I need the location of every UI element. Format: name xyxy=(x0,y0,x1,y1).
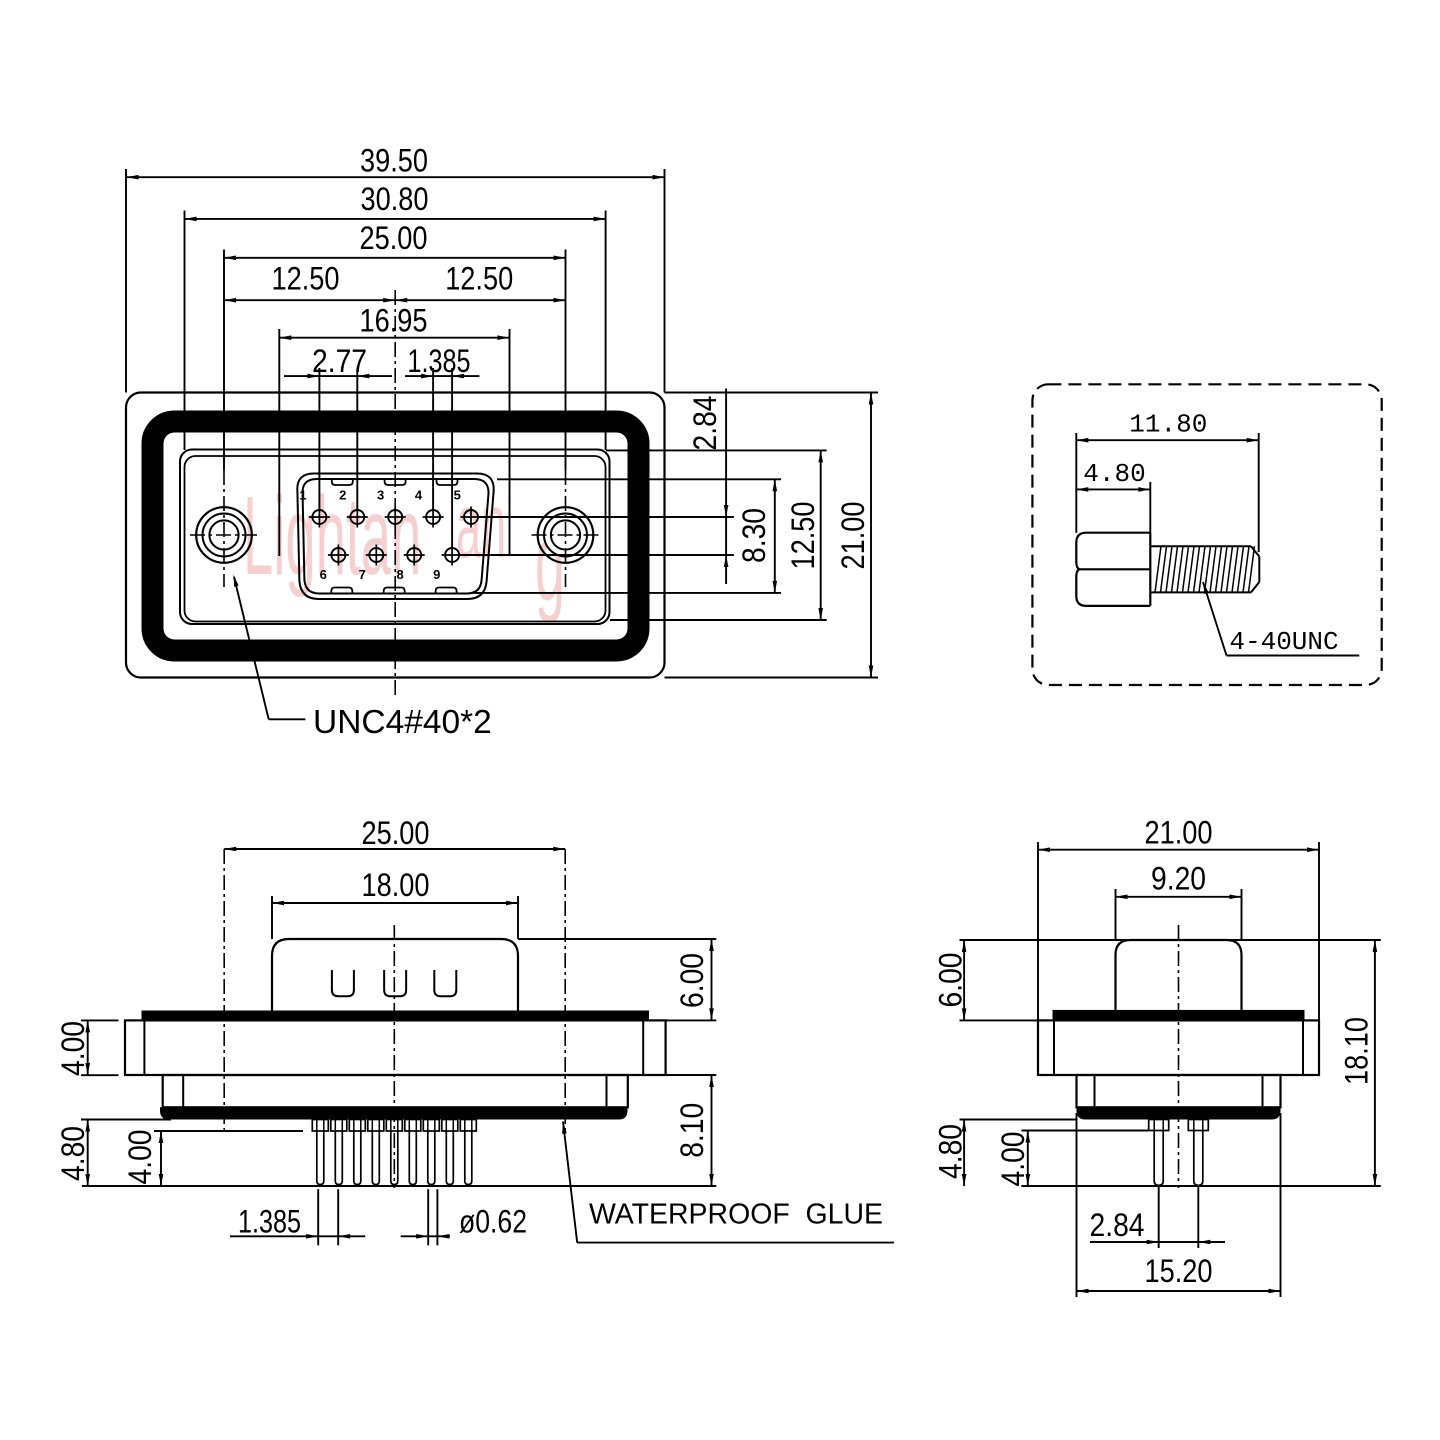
svg-text:12.50: 12.50 xyxy=(445,261,513,297)
svg-text:1: 1 xyxy=(299,488,306,503)
svg-text:8.10: 8.10 xyxy=(674,1103,710,1158)
svg-text:5: 5 xyxy=(454,488,461,503)
svg-text:12.50: 12.50 xyxy=(785,502,821,570)
svg-text:3: 3 xyxy=(377,488,384,503)
svg-text:15.20: 15.20 xyxy=(1145,1253,1213,1289)
svg-text:21.00: 21.00 xyxy=(1145,815,1213,851)
svg-text:4.00: 4.00 xyxy=(122,1130,158,1185)
svg-text:21.00: 21.00 xyxy=(835,502,871,570)
svg-text:8: 8 xyxy=(396,567,403,582)
svg-text:an: an xyxy=(456,474,506,577)
svg-text:6.00: 6.00 xyxy=(933,953,969,1008)
svg-text:6: 6 xyxy=(320,567,327,582)
svg-text:39.50: 39.50 xyxy=(360,143,428,179)
svg-text:25.00: 25.00 xyxy=(360,220,428,256)
svg-text:UNC4#40*2: UNC4#40*2 xyxy=(313,704,492,741)
svg-text:2.84: 2.84 xyxy=(1090,1207,1145,1243)
svg-text:4: 4 xyxy=(415,488,423,503)
svg-text:1.385: 1.385 xyxy=(238,1204,301,1240)
svg-text:1.385: 1.385 xyxy=(408,343,471,379)
svg-text:4-40UNC: 4-40UNC xyxy=(1229,627,1338,657)
svg-text:ø0.62: ø0.62 xyxy=(459,1204,527,1240)
svg-text:WATERPROOF GLUE: WATERPROOF GLUE xyxy=(589,1199,883,1231)
svg-text:18.10: 18.10 xyxy=(1339,1017,1375,1085)
svg-text:18.00: 18.00 xyxy=(362,867,430,903)
svg-text:25.00: 25.00 xyxy=(362,815,430,851)
svg-text:30.80: 30.80 xyxy=(361,181,429,217)
svg-text:8.30: 8.30 xyxy=(736,508,772,563)
svg-text:12.50: 12.50 xyxy=(272,261,340,297)
svg-text:11.80: 11.80 xyxy=(1129,410,1207,440)
svg-text:16.95: 16.95 xyxy=(360,303,428,339)
svg-text:4.80: 4.80 xyxy=(1083,459,1145,489)
svg-text:9.20: 9.20 xyxy=(1151,861,1206,897)
svg-text:2: 2 xyxy=(339,488,346,503)
svg-text:6.00: 6.00 xyxy=(674,953,710,1008)
svg-text:4.80: 4.80 xyxy=(55,1126,91,1181)
svg-text:4.80: 4.80 xyxy=(933,1124,969,1179)
svg-text:2.84: 2.84 xyxy=(687,396,723,451)
svg-text:9: 9 xyxy=(433,567,440,582)
svg-text:4.00: 4.00 xyxy=(55,1021,91,1076)
svg-text:7: 7 xyxy=(359,567,366,582)
svg-text:4.00: 4.00 xyxy=(995,1132,1031,1187)
